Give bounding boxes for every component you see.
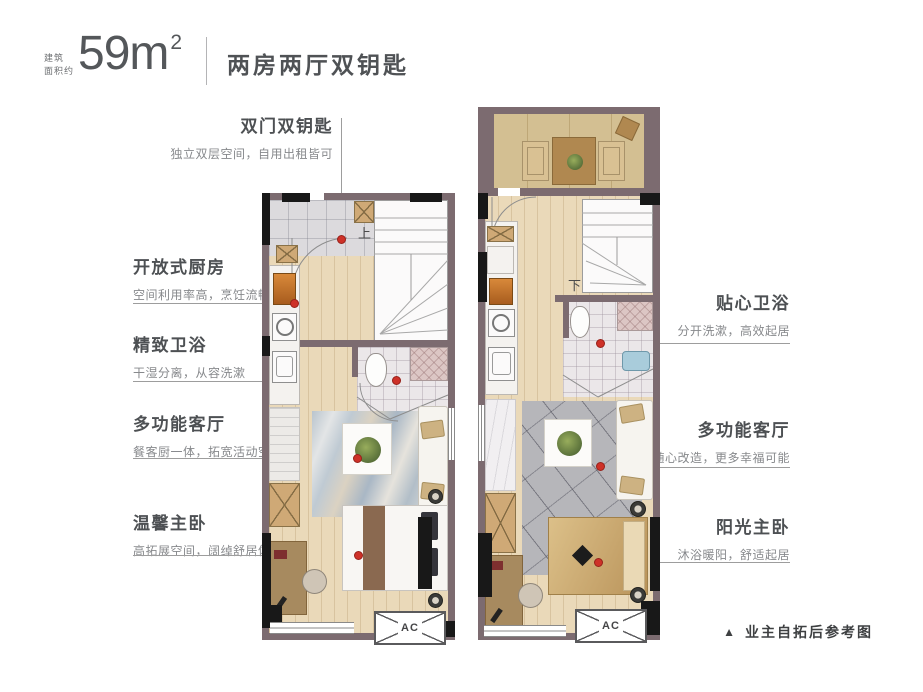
- callout-dot: [594, 558, 603, 567]
- ac-platform: AC: [575, 609, 647, 643]
- callout-living-lower: 多功能客厅 餐客厨一体，拓宽活动空间: [133, 410, 283, 460]
- callout-dot: [354, 551, 363, 560]
- ac-platform: AC: [374, 611, 446, 645]
- callout-title: 多功能客厅: [133, 410, 283, 435]
- area-value: 59m2: [78, 26, 179, 81]
- callout-dot: [290, 299, 299, 308]
- column: [650, 517, 660, 591]
- callout-dot: [392, 376, 401, 385]
- callout-subtitle: 高拓展空间，阔绰舒居体验: [133, 542, 283, 559]
- area-note-line2: 面积约: [44, 65, 74, 78]
- floorplan-lower-unit: 上: [262, 193, 455, 640]
- footer-note: ▲ 业主自拓后参考图: [723, 622, 873, 642]
- side-window: [478, 405, 485, 461]
- callout-title: 双门双钥匙: [133, 112, 333, 137]
- column: [262, 533, 271, 605]
- column: [478, 193, 488, 219]
- floorplan-page: 建筑 面积约 59m2 两房两厅双钥匙 双门双钥匙 独立双层空间，自用出租皆可 …: [0, 0, 923, 692]
- column: [478, 533, 492, 597]
- side-window: [448, 408, 455, 460]
- callout-dot: [337, 235, 346, 244]
- footer-text: 业主自拓后参考图: [745, 622, 873, 642]
- callout-dot: [596, 339, 605, 348]
- column: [262, 193, 270, 245]
- floorplan-upper-unit: 下: [478, 107, 660, 640]
- area-superscript: 2: [170, 31, 181, 54]
- bottom-window: [484, 625, 566, 637]
- callout-title: 精致卫浴: [133, 331, 246, 356]
- area-note-line1: 建筑: [44, 52, 74, 65]
- bottom-window: [270, 622, 354, 634]
- header-divider: [206, 37, 207, 85]
- entry-door-gap: [310, 193, 324, 200]
- ac-label: AC: [599, 620, 623, 632]
- outer-wall: [478, 107, 660, 640]
- page-title: 两房两厅双钥匙: [227, 46, 409, 80]
- callout-bath-lower: 精致卫浴 干湿分离，从容洗漱: [133, 331, 246, 381]
- callout-subtitle: 干湿分离，从容洗漱: [133, 364, 246, 381]
- area-note: 建筑 面积约: [44, 52, 74, 78]
- callout-dot: [353, 454, 362, 463]
- column: [640, 193, 660, 205]
- callout-title: 温馨主卧: [133, 509, 283, 534]
- column: [282, 193, 310, 202]
- triangle-marker: ▲: [723, 625, 735, 639]
- column: [478, 252, 487, 302]
- column: [418, 517, 432, 589]
- callout-dot: [596, 462, 605, 471]
- area-number: 59m: [78, 27, 168, 80]
- callout-subtitle: 独立双层空间，自用出租皆可: [133, 145, 333, 162]
- callout-bedroom-lower: 温馨主卧 高拓展空间，阔绰舒居体验: [133, 509, 283, 559]
- column: [262, 336, 270, 356]
- ac-label: AC: [398, 622, 422, 634]
- callout-double-door: 双门双钥匙 独立双层空间，自用出租皆可: [133, 112, 333, 162]
- column: [410, 193, 442, 202]
